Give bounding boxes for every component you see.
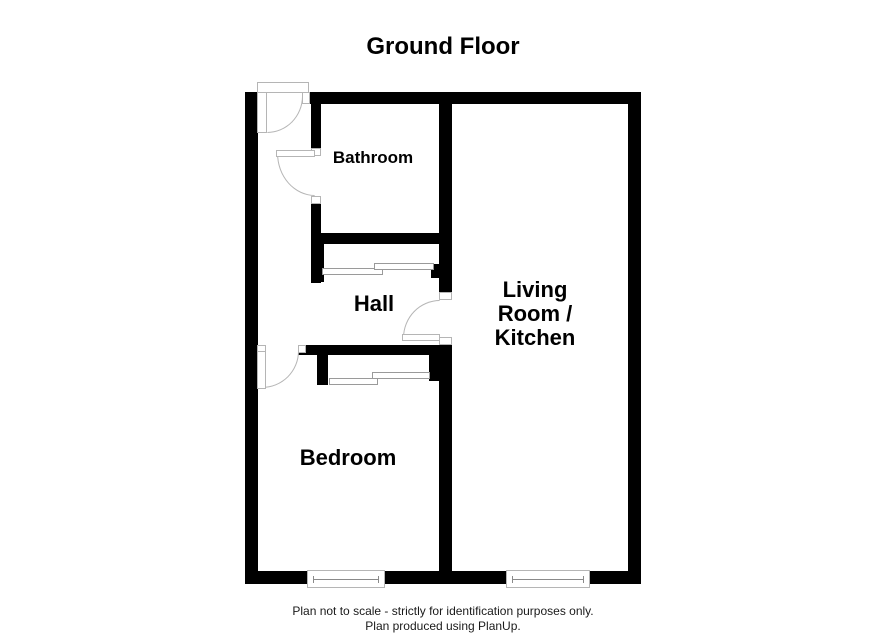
living-room-door-leaf: [402, 334, 440, 341]
living-room-window-tick-right: [583, 576, 584, 583]
bathroom-bottom-wall: [311, 233, 452, 244]
wardrobe-sliding-door-left: [329, 378, 378, 385]
exterior-wall-left: [245, 92, 258, 584]
bathroom-side-wall-upper: [311, 104, 321, 148]
wardrobe-sliding-door-right: [372, 372, 430, 379]
wardrobe-left-stub: [317, 355, 328, 385]
bathroom-door-leaf: [276, 150, 315, 157]
bedroom-top-wall: [298, 345, 452, 355]
living-room-door-swing-arc: [403, 300, 440, 338]
front-door-leaf: [257, 92, 267, 133]
bathroom-door-jamb-bottom: [311, 196, 321, 204]
bathroom-door-swing-arc: [277, 153, 315, 196]
disclaimer-text: Plan not to scale - strictly for identif…: [0, 604, 886, 634]
hall-cupboard-left-stub: [311, 244, 324, 282]
wardrobe-right-stub: [429, 355, 441, 381]
bedroom-window-tick-right: [378, 576, 379, 583]
hall-label: Hall: [354, 291, 394, 317]
living-room-label-line3: Kitchen: [495, 326, 576, 350]
bedroom-window: [307, 570, 385, 588]
bedroom-door-leaf: [257, 351, 266, 389]
bedroom-window-glazing-line: [313, 579, 379, 580]
living-room-label-line2: Room /: [495, 302, 576, 326]
living-room-door-jamb-top: [439, 292, 452, 300]
front-door-jamb: [302, 92, 310, 104]
living-room-label-line1: Living: [495, 278, 576, 302]
living-room-door-jamb-bottom: [439, 337, 452, 345]
disclaimer-line2: Plan produced using PlanUp.: [0, 619, 886, 634]
front-door-swing-arc: [267, 96, 303, 133]
floorplan-diagram: Bathroom Hall Living Room / Kitchen Bedr…: [0, 0, 886, 644]
living-room-window: [506, 570, 590, 588]
bedroom-window-tick-left: [313, 576, 314, 583]
living-room-window-tick-left: [512, 576, 513, 583]
bedroom-label: Bedroom: [300, 445, 397, 471]
hall-cupboard-sliding-door-right: [374, 263, 434, 270]
bedroom-door-jamb-right: [298, 345, 306, 353]
living-room-window-glazing-line: [512, 579, 584, 580]
bathroom-label: Bathroom: [333, 148, 413, 168]
bedroom-door-swing-arc: [262, 351, 299, 388]
living-room-kitchen-label: Living Room / Kitchen: [495, 278, 576, 350]
exterior-wall-right: [628, 92, 641, 584]
disclaimer-line1: Plan not to scale - strictly for identif…: [0, 604, 886, 619]
